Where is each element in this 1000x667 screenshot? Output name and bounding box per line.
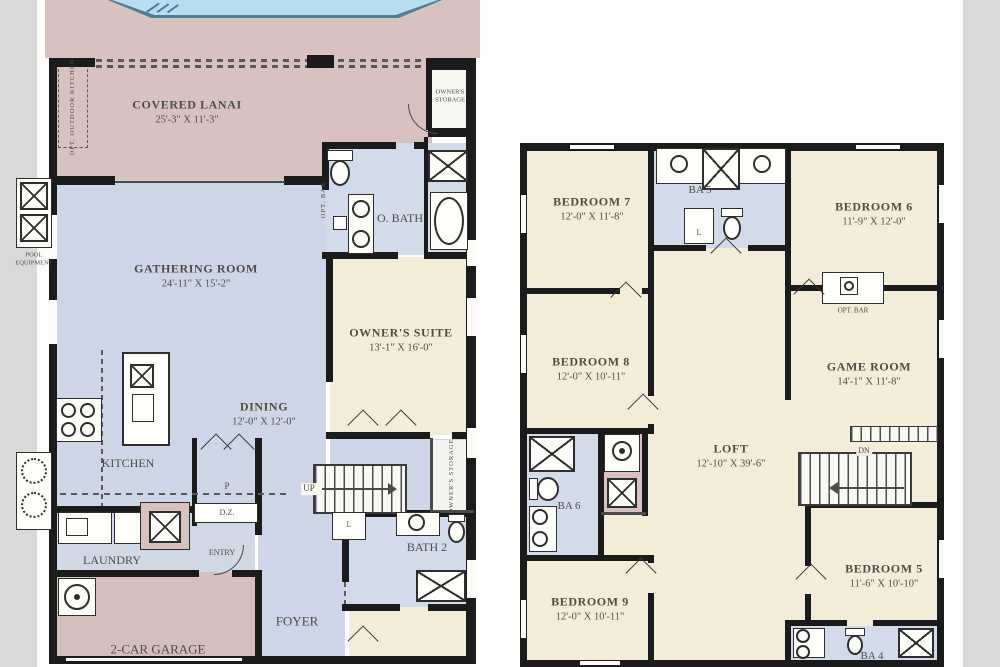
wall: [428, 604, 466, 611]
stairs-down-upper: [850, 426, 938, 442]
sliding-door-dashes: [96, 59, 424, 62]
burner-icon: [61, 422, 76, 437]
sink-icon: [796, 645, 810, 659]
left-photo-band: [0, 0, 37, 667]
window: [467, 298, 476, 336]
wall: [648, 555, 654, 563]
drop-zone-label: D.Z.: [220, 508, 235, 518]
wall: [426, 58, 476, 70]
bedroom7-label: BEDROOM 7 12'-0" X 11'-8": [553, 194, 631, 223]
window: [467, 428, 476, 458]
wall: [648, 143, 654, 294]
stairs-arrow-head: [829, 482, 838, 494]
sink-icon: [670, 155, 688, 173]
window: [939, 320, 944, 358]
burner-icon: [61, 403, 76, 418]
wall: [326, 432, 430, 439]
window: [467, 560, 476, 598]
bedroom9-label: BEDROOM 9 12'-0" X 10'-11": [551, 594, 629, 623]
wall: [642, 428, 648, 516]
stairs-arrow-head: [388, 483, 397, 495]
water-heater-icon: [74, 594, 80, 600]
opt-bar-sink: [844, 281, 854, 291]
entry-label: ENTRY: [209, 548, 235, 558]
ba5-label: BA 5: [689, 183, 712, 197]
sink-icon: [532, 509, 548, 525]
opt-outdoor-kitchen-label: OPT. OUTDOOR KITCHEN: [69, 59, 77, 156]
ba5-linen-label: L: [697, 228, 702, 238]
wall: [326, 252, 333, 382]
window: [580, 661, 620, 665]
wall: [873, 620, 938, 626]
covered-lanai-label: COVERED LANAI 25'-3" X 11'-3": [132, 97, 241, 126]
stairs-arrow: [838, 487, 904, 489]
owners-storage-side-label: OWNER'S STORAGE: [448, 438, 456, 513]
owners-suite-label: OWNER'S SUITE 13'-1" X 16'-0": [349, 325, 453, 354]
sink-icon: [796, 629, 810, 643]
wall: [785, 620, 791, 667]
foyer-label: FOYER: [276, 614, 319, 631]
laundry-label: LAUNDRY: [83, 553, 141, 569]
wall: [648, 245, 706, 251]
wall: [785, 620, 847, 626]
pantry-label: P: [224, 481, 229, 493]
burner-icon: [80, 403, 95, 418]
window: [856, 145, 900, 149]
burner-icon: [80, 422, 95, 437]
sliding-door-dashes: [96, 65, 424, 68]
gathering-room-label: GATHERING ROOM 24'-11" X 15'-2": [134, 261, 258, 290]
cooktop-icon: [132, 394, 154, 422]
ac-unit-icon: [21, 492, 47, 518]
wall: [748, 245, 791, 251]
gathering-room-area: [56, 180, 326, 510]
counter-dashes: [60, 493, 288, 495]
owners-storage-top-label: OWNER'S STORAGE: [435, 89, 465, 106]
window: [521, 600, 526, 638]
floor-plan-photo: COVERED LANAI 25'-3" X 11'-3" OPT. OUTDO…: [0, 0, 1000, 667]
pool-equipment-unit-icon: [20, 182, 48, 210]
window: [939, 540, 944, 578]
ba4-label: BA 4: [861, 649, 884, 663]
wall: [805, 502, 811, 566]
ba6-label: BA 6: [558, 499, 581, 513]
window: [521, 335, 526, 373]
sink-icon: [408, 514, 425, 531]
loft-label: LOFT 12'-10" X 39'-6": [697, 441, 766, 470]
wall: [255, 575, 262, 663]
kitchen-label: KITCHEN: [102, 456, 155, 472]
game-room-label: GAME ROOM 14'-1" X 11'-8": [827, 359, 911, 388]
linen-closet: [684, 208, 714, 244]
wall: [322, 142, 396, 149]
wall: [785, 288, 791, 400]
toilet-icon: [330, 160, 350, 186]
shower-icon: [529, 436, 575, 472]
island-sink-icon: [130, 364, 154, 388]
sink-icon: [352, 200, 370, 218]
dining-label: DINING 12'-0" X 12'-0": [232, 399, 296, 428]
dn-label: DN: [856, 446, 872, 456]
washer-icon: [619, 448, 625, 454]
toilet-icon: [448, 521, 465, 543]
bedroom8-label: BEDROOM 8 12'-0" X 10'-11": [552, 354, 630, 383]
right-photo-band: [963, 0, 1000, 667]
pool-equipment-label: POOL EQUIPMENT: [15, 252, 53, 269]
shower-icon: [416, 570, 466, 602]
bath2-label: BATH 2: [407, 540, 447, 556]
stairs-down-lower: [798, 452, 912, 506]
wall: [424, 252, 466, 259]
shower-icon: [428, 150, 468, 182]
opt-bar-label: OPT. BAR: [320, 182, 328, 218]
window: [521, 195, 526, 233]
wall: [648, 593, 654, 660]
toilet-icon: [537, 477, 559, 501]
dryer-icon: [149, 511, 181, 543]
wall: [49, 176, 115, 185]
window: [939, 185, 944, 223]
sink-icon: [352, 230, 370, 248]
wall: [526, 288, 620, 294]
laundry-sink-icon: [66, 518, 88, 536]
up-label: UP: [301, 483, 317, 495]
opt-bar-cabinet: [333, 216, 347, 230]
window: [49, 300, 57, 344]
sliding-door-sill: [115, 181, 285, 183]
wall: [342, 604, 400, 611]
wall: [648, 288, 654, 396]
linen-label: L: [347, 520, 352, 530]
opt-bar2-label: OPT. BAR: [838, 306, 869, 315]
wall: [232, 570, 262, 577]
ac-unit-icon: [21, 458, 47, 484]
storage-side-wall: [430, 438, 433, 514]
wall: [49, 570, 199, 577]
stairs-arrow: [322, 488, 390, 490]
dryer-icon: [607, 478, 637, 508]
wall: [520, 555, 654, 561]
sink-icon: [753, 155, 771, 173]
garage-label: 2-CAR GARAGE: [111, 642, 206, 659]
bedroom6-label: BEDROOM 6 11'-9" X 12'-0": [835, 199, 913, 228]
window: [467, 240, 476, 266]
sink-icon: [532, 531, 548, 547]
o-bath-label: O. BATH: [377, 211, 423, 227]
wall: [805, 594, 811, 620]
wall: [307, 55, 334, 68]
wall: [414, 142, 426, 149]
pool-equipment-unit-icon: [20, 214, 48, 242]
closet-wall: [601, 512, 646, 515]
shower-icon: [898, 628, 934, 658]
bathtub-icon: [434, 197, 464, 245]
bedroom5-label: BEDROOM 5 11'-6" X 10'-10": [845, 561, 923, 590]
window: [570, 145, 614, 149]
